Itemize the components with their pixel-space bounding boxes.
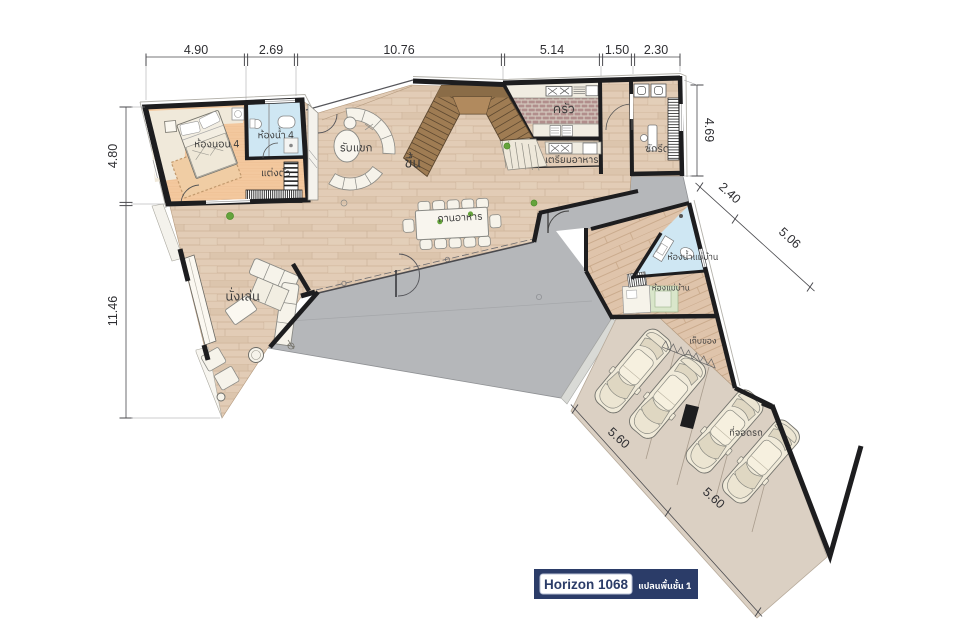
svg-text:11.46: 11.46 xyxy=(106,296,120,326)
svg-text:4.69: 4.69 xyxy=(702,118,716,142)
svg-text:2.30: 2.30 xyxy=(644,43,668,57)
svg-text:4.90: 4.90 xyxy=(184,43,208,57)
svg-text:5.14: 5.14 xyxy=(540,43,564,57)
svg-text:Horizon 1068: Horizon 1068 xyxy=(544,577,629,592)
svg-text:2.69: 2.69 xyxy=(259,43,283,57)
svg-text:1.50: 1.50 xyxy=(605,43,629,57)
svg-text:10.76: 10.76 xyxy=(383,43,414,57)
svg-text:4.80: 4.80 xyxy=(106,144,120,168)
